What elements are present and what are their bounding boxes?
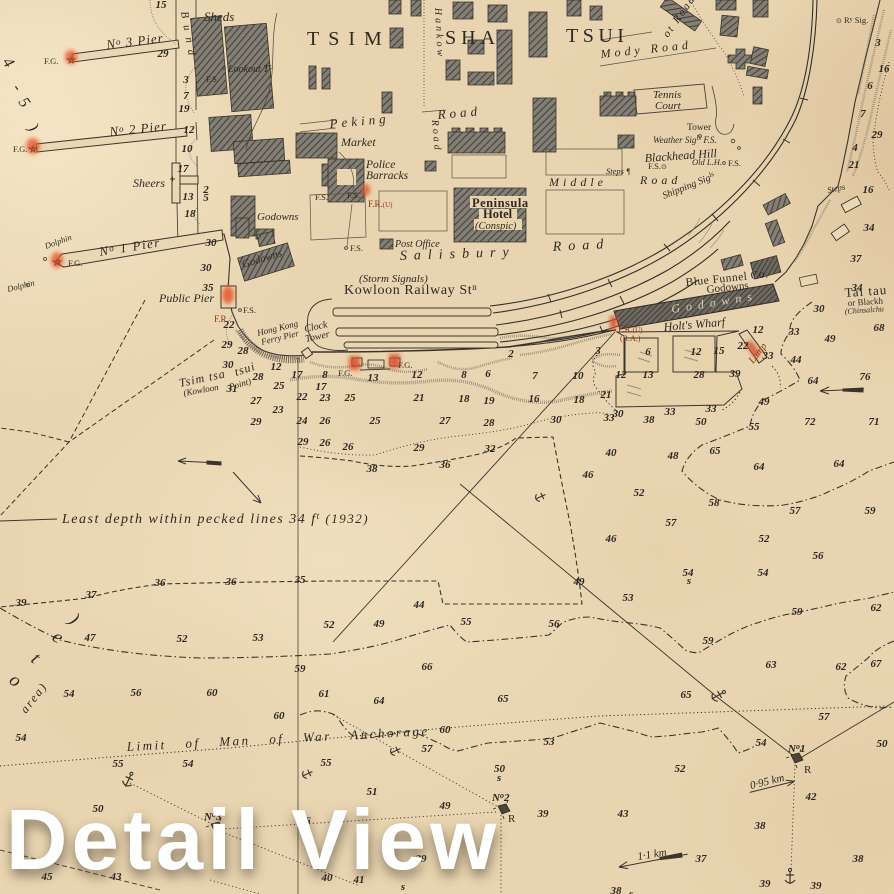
- svg-text:15: 15: [714, 345, 726, 357]
- svg-text:30: 30: [813, 303, 826, 315]
- svg-text:F.G.: F.G.: [13, 144, 27, 154]
- svg-text:33: 33: [788, 326, 801, 338]
- svg-text:4: 4: [851, 142, 858, 154]
- svg-text:⊙ Ry Sig.: ⊙ Ry Sig.: [836, 15, 868, 25]
- svg-text:13: 13: [643, 369, 655, 381]
- svg-text:36: 36: [439, 459, 452, 471]
- svg-text:36: 36: [154, 577, 167, 589]
- svg-text:30: 30: [550, 414, 563, 426]
- svg-text:33: 33: [762, 350, 775, 362]
- svg-text:F.S.: F.S.: [347, 190, 360, 200]
- svg-text:55: 55: [749, 421, 761, 433]
- svg-text:Middle: Middle: [548, 175, 607, 189]
- svg-text:49: 49: [824, 333, 837, 345]
- svg-text:56: 56: [549, 618, 561, 630]
- svg-text:66: 66: [422, 661, 434, 673]
- svg-text:30: 30: [222, 359, 235, 371]
- svg-text:26: 26: [342, 441, 355, 453]
- svg-text:21: 21: [848, 159, 860, 171]
- svg-text:55: 55: [113, 758, 125, 770]
- svg-text:Barracks: Barracks: [366, 170, 409, 182]
- svg-text:26: 26: [319, 437, 332, 449]
- svg-text:59: 59: [703, 635, 715, 647]
- svg-text:Sheds: Sheds: [204, 9, 234, 24]
- svg-text:53: 53: [544, 736, 556, 748]
- svg-text:39: 39: [15, 597, 28, 609]
- svg-text:29: 29: [250, 416, 263, 428]
- svg-text:46: 46: [582, 469, 595, 481]
- svg-text:(R.A.): (R.A.): [620, 334, 641, 343]
- svg-text:F.S.⊙: F.S.⊙: [648, 161, 667, 171]
- svg-text:64: 64: [834, 458, 846, 470]
- svg-text:Kowloon Railway Stn: Kowloon Railway Stn: [344, 282, 477, 298]
- svg-text:F.S.: F.S.: [728, 158, 741, 168]
- svg-text:F.R.(U): F.R.(U): [368, 199, 393, 209]
- svg-text:7: 7: [183, 90, 189, 102]
- svg-text:25: 25: [273, 380, 286, 392]
- svg-text:15: 15: [156, 0, 168, 11]
- svg-text:64: 64: [754, 461, 766, 473]
- svg-text:65: 65: [710, 445, 722, 457]
- svg-text:55: 55: [461, 616, 473, 628]
- svg-text:72: 72: [805, 416, 817, 428]
- svg-text:33: 33: [603, 412, 616, 424]
- svg-text:7: 7: [860, 108, 866, 120]
- svg-text:60: 60: [207, 687, 219, 699]
- svg-text:16: 16: [529, 393, 541, 405]
- svg-text:17: 17: [178, 163, 190, 175]
- svg-text:Tower: Tower: [687, 123, 712, 133]
- svg-text:52: 52: [634, 487, 646, 499]
- svg-text:3: 3: [182, 74, 189, 86]
- svg-text:Court: Court: [655, 100, 682, 112]
- svg-text:TSUI: TSUI: [566, 25, 628, 47]
- svg-text:29: 29: [157, 48, 170, 60]
- svg-text:65: 65: [681, 689, 693, 701]
- svg-text:52: 52: [324, 619, 336, 631]
- svg-text:59: 59: [865, 505, 877, 517]
- svg-text:60: 60: [274, 710, 286, 722]
- svg-text:59: 59: [792, 606, 804, 618]
- svg-text:34: 34: [863, 222, 876, 234]
- svg-text:61: 61: [319, 688, 330, 700]
- svg-text:37: 37: [695, 853, 708, 865]
- svg-text:24: 24: [296, 415, 309, 427]
- svg-text:38: 38: [610, 885, 623, 894]
- svg-text:18: 18: [185, 208, 197, 220]
- svg-text:8: 8: [322, 369, 328, 381]
- svg-text:50: 50: [696, 416, 708, 428]
- svg-text:35: 35: [202, 282, 215, 294]
- svg-text:12: 12: [184, 124, 196, 136]
- svg-text:54: 54: [16, 732, 28, 744]
- svg-text:46: 46: [605, 533, 618, 545]
- svg-text:29: 29: [221, 339, 234, 351]
- svg-text:54: 54: [64, 688, 76, 700]
- svg-text:48: 48: [667, 450, 680, 462]
- svg-text:12: 12: [271, 361, 283, 373]
- svg-text:Steps ¶: Steps ¶: [606, 166, 630, 176]
- svg-text:47: 47: [84, 632, 97, 644]
- svg-text:38: 38: [643, 414, 656, 426]
- svg-text:76: 76: [860, 371, 872, 383]
- svg-text:F.R.(U): F.R.(U): [618, 324, 643, 334]
- svg-text:10: 10: [182, 143, 194, 155]
- svg-text:Road: Road: [551, 237, 610, 255]
- svg-text:33: 33: [664, 406, 677, 418]
- svg-text:6: 6: [485, 368, 491, 380]
- svg-text:35: 35: [294, 574, 307, 586]
- svg-text:38: 38: [754, 820, 767, 832]
- svg-text:63: 63: [766, 659, 778, 671]
- svg-text:49: 49: [758, 396, 771, 408]
- svg-text:25: 25: [369, 415, 382, 427]
- svg-text:21: 21: [600, 389, 612, 401]
- svg-text:55: 55: [321, 757, 333, 769]
- svg-text:7: 7: [532, 370, 538, 382]
- svg-text:64: 64: [808, 375, 820, 387]
- svg-text:23: 23: [319, 392, 332, 404]
- svg-text:F.G.: F.G.: [68, 258, 82, 268]
- svg-text:21: 21: [413, 392, 425, 404]
- svg-text:27: 27: [250, 395, 263, 407]
- svg-text:F.S.: F.S.: [315, 192, 328, 202]
- svg-text:s: s: [628, 888, 633, 894]
- svg-text:Hotel: Hotel: [483, 207, 513, 221]
- svg-text:54: 54: [756, 737, 768, 749]
- svg-text:36: 36: [225, 576, 238, 588]
- svg-text:38: 38: [366, 463, 379, 475]
- svg-text:43: 43: [617, 808, 630, 820]
- svg-text:57: 57: [666, 517, 678, 529]
- svg-text:57: 57: [790, 505, 802, 517]
- svg-text:3: 3: [874, 37, 881, 49]
- svg-text:s: s: [496, 772, 501, 784]
- svg-text:13: 13: [368, 372, 380, 384]
- svg-text:44: 44: [790, 354, 803, 366]
- svg-text:33: 33: [705, 403, 718, 415]
- svg-text:Old L.H.: Old L.H.: [692, 157, 722, 167]
- svg-text:62: 62: [836, 661, 848, 673]
- svg-text:23: 23: [272, 404, 285, 416]
- svg-text:34: 34: [851, 282, 864, 294]
- svg-text:50: 50: [877, 738, 889, 750]
- svg-text:39: 39: [537, 808, 550, 820]
- svg-text:56: 56: [131, 687, 143, 699]
- svg-text:Market: Market: [340, 135, 376, 149]
- svg-text:SHA: SHA: [445, 27, 500, 49]
- svg-text:18: 18: [459, 393, 471, 405]
- svg-text:Lookout Tr.: Lookout Tr.: [227, 63, 273, 75]
- svg-text:2: 2: [507, 348, 514, 360]
- svg-text:58: 58: [709, 497, 721, 509]
- svg-text:56: 56: [813, 550, 825, 562]
- svg-text:10: 10: [573, 370, 585, 382]
- svg-text:6: 6: [645, 346, 651, 358]
- svg-text:Detail View: Detail View: [6, 793, 501, 888]
- svg-text:12: 12: [753, 324, 765, 336]
- svg-text:53: 53: [623, 592, 635, 604]
- svg-text:Sheers: Sheers: [133, 176, 165, 190]
- svg-text:F.S.: F.S.: [243, 305, 256, 315]
- svg-text:TSIM: TSIM: [307, 28, 391, 50]
- svg-text:62: 62: [871, 602, 883, 614]
- svg-text:32: 32: [484, 443, 497, 455]
- svg-text:71: 71: [869, 416, 880, 428]
- svg-text:52: 52: [177, 633, 189, 645]
- svg-text:16: 16: [879, 63, 891, 75]
- svg-text:57: 57: [422, 743, 434, 755]
- svg-text:68: 68: [874, 322, 886, 334]
- svg-text:27: 27: [439, 415, 452, 427]
- svg-text:28: 28: [252, 371, 265, 383]
- svg-text:R: R: [508, 813, 516, 825]
- svg-text:65: 65: [498, 693, 510, 705]
- svg-text:13: 13: [183, 191, 195, 203]
- svg-text:Godowns: Godowns: [257, 211, 299, 223]
- svg-text:54: 54: [758, 567, 770, 579]
- svg-text:12: 12: [616, 369, 628, 381]
- svg-text:26: 26: [319, 415, 332, 427]
- svg-text:39: 39: [729, 368, 742, 380]
- svg-text:29: 29: [871, 129, 884, 141]
- svg-text:(Conspic): (Conspic): [475, 221, 517, 232]
- svg-text:52: 52: [759, 533, 771, 545]
- svg-text:59: 59: [295, 663, 307, 675]
- svg-text:19: 19: [484, 395, 496, 407]
- svg-text:29: 29: [413, 442, 426, 454]
- svg-text:F.G.: F.G.: [44, 56, 58, 66]
- svg-text:19: 19: [179, 103, 191, 115]
- svg-text:37: 37: [850, 253, 863, 265]
- svg-text:39: 39: [759, 878, 772, 890]
- svg-text:12: 12: [691, 346, 703, 358]
- svg-text:22: 22: [223, 319, 236, 331]
- svg-text:Weather Sigls F.S.: Weather Sigls F.S.: [653, 134, 717, 145]
- svg-text:28: 28: [237, 345, 250, 357]
- svg-text:31: 31: [226, 383, 238, 395]
- svg-text:53: 53: [253, 632, 265, 644]
- svg-text:44: 44: [413, 599, 426, 611]
- svg-text:s: s: [686, 575, 691, 587]
- svg-text:8: 8: [461, 369, 467, 381]
- svg-text:29: 29: [297, 436, 310, 448]
- svg-text:22: 22: [737, 340, 750, 352]
- svg-text:60: 60: [440, 724, 452, 736]
- svg-text:40: 40: [605, 447, 618, 459]
- svg-text:22: 22: [296, 391, 309, 403]
- svg-text:49: 49: [573, 576, 586, 588]
- svg-text:16: 16: [863, 184, 875, 196]
- svg-text:3: 3: [594, 345, 601, 357]
- svg-text:64: 64: [374, 695, 386, 707]
- svg-text:F.S.: F.S.: [206, 74, 219, 84]
- svg-text:12: 12: [412, 369, 424, 381]
- svg-text:54: 54: [183, 758, 195, 770]
- svg-text:R: R: [804, 764, 812, 776]
- svg-text:52: 52: [675, 763, 687, 775]
- svg-text:39: 39: [810, 880, 823, 892]
- svg-text:6: 6: [867, 80, 873, 92]
- svg-text:18: 18: [574, 394, 586, 406]
- svg-text:38: 38: [852, 853, 865, 865]
- svg-text:25: 25: [344, 392, 357, 404]
- svg-text:42: 42: [805, 791, 818, 803]
- svg-text:57: 57: [819, 711, 831, 723]
- svg-text:28: 28: [483, 417, 496, 429]
- svg-text:30: 30: [200, 262, 213, 274]
- svg-text:17: 17: [292, 369, 304, 381]
- svg-text:5: 5: [203, 192, 209, 204]
- svg-text:28: 28: [693, 369, 706, 381]
- svg-text:30: 30: [205, 237, 218, 249]
- svg-text:Least depth within pecked: Least depth within pecked lines 34 ft (1…: [61, 511, 369, 527]
- svg-text:37: 37: [85, 589, 98, 601]
- svg-text:F.S.: F.S.: [350, 243, 363, 253]
- svg-text:49: 49: [373, 618, 386, 630]
- svg-text:67: 67: [871, 658, 883, 670]
